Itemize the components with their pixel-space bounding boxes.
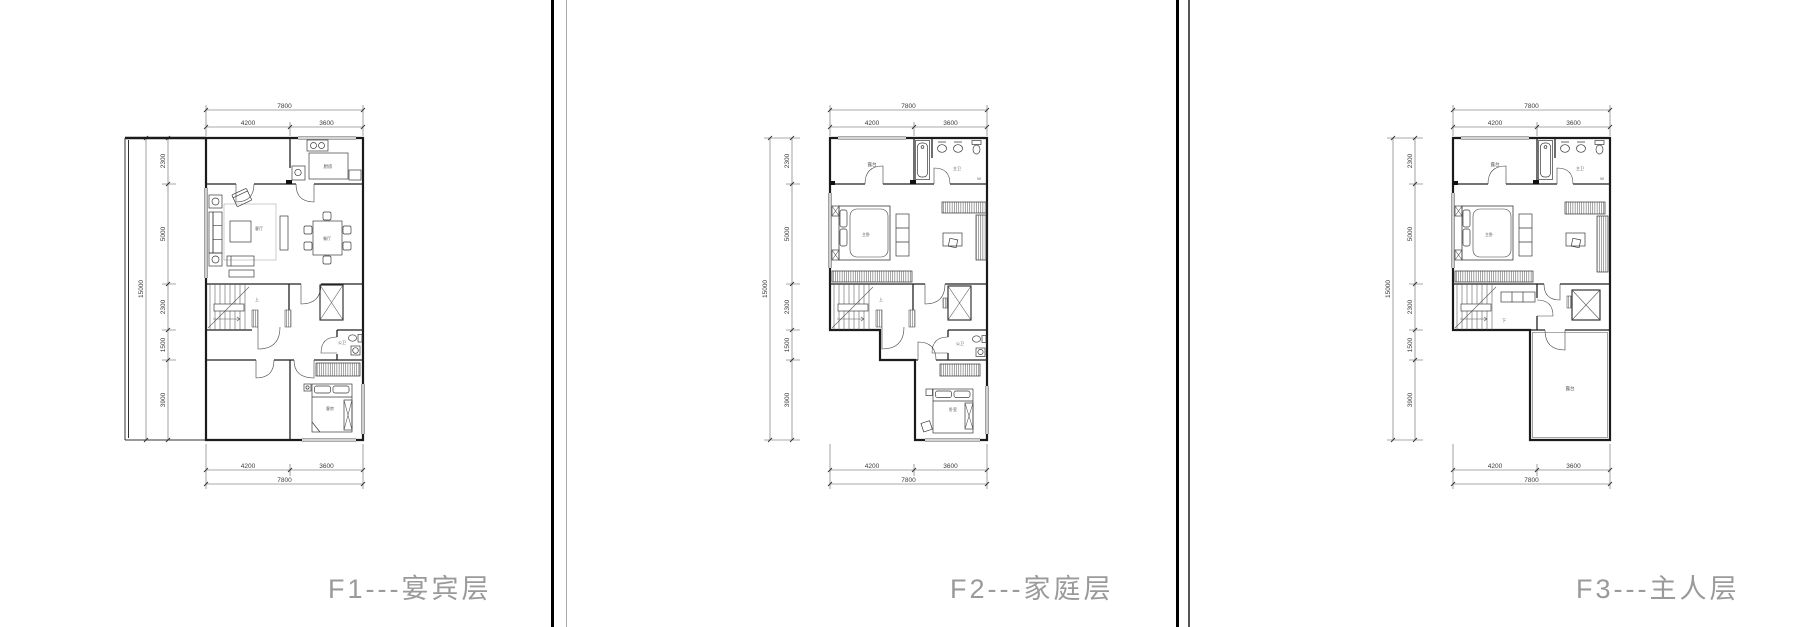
f3-master-bedroom [1455, 202, 1608, 282]
dim-label: 2300 [160, 299, 167, 314]
dim-label: 2300 [1407, 299, 1414, 314]
dim-label: 7800 [1524, 477, 1539, 484]
room-label-master-bath: 主卫 [1576, 165, 1584, 171]
f1-windows [204, 136, 365, 442]
f2-bathroom [973, 336, 987, 357]
dim-label: 3600 [319, 120, 334, 127]
f3-walls [1453, 138, 1610, 440]
f2-master-bedroom [832, 202, 987, 282]
stair-direction-label: 上 [255, 296, 259, 302]
room-label-master-bedroom: 主卧 [1485, 231, 1493, 237]
floor-title-f2: F2---家庭层 [950, 567, 1113, 606]
dim-label: 15000 [1385, 280, 1392, 298]
f2-walls [830, 138, 987, 440]
f2-windows [828, 136, 989, 442]
dim-label: 3900 [1407, 392, 1414, 407]
f1-doors [236, 184, 337, 378]
dim-label: 4200 [865, 463, 880, 470]
dim-label: 5000 [784, 226, 791, 241]
dim-label: 3600 [943, 120, 958, 127]
room-label-bedroom: 客房 [326, 405, 334, 411]
floor-title-f1: F1---宴宾层 [328, 567, 491, 606]
dim-label: 3600 [943, 463, 958, 470]
dim-label: 2300 [784, 299, 791, 314]
f3-stairs [1455, 284, 1535, 330]
dim-label: 5000 [1407, 226, 1414, 241]
f2-bedroom [921, 364, 980, 433]
dim-label: 3900 [784, 392, 791, 407]
dim-label: 4200 [1488, 120, 1503, 127]
panel-divider-1-thick [551, 0, 554, 627]
floor-plan-f2: 7800 4200 3600 4200 3600 7800 2300 5000 … [740, 93, 1000, 493]
room-label-living: 客厅 [255, 225, 263, 231]
f3-master-bath [1539, 141, 1605, 180]
stair-direction-label: 下 [1502, 318, 1506, 323]
f1-living-room [209, 188, 351, 277]
floor-plan-f1: 7800 4200 3600 4200 3600 7800 2300 5000 … [116, 93, 376, 493]
dim-label: 3600 [1566, 463, 1581, 470]
dim-label: 7800 [277, 477, 292, 484]
dim-label: 5000 [160, 226, 167, 241]
room-label-terrace-top: 露台 [1491, 161, 1500, 168]
panel-divider-1-thin [566, 0, 567, 627]
f1-bathroom [349, 335, 363, 356]
room-label-master-bedroom: 主卧 [862, 231, 870, 237]
dim-label: 4200 [865, 120, 880, 127]
f3-windows [1451, 136, 1529, 268]
dim-label: 15000 [762, 280, 769, 298]
dim-label: 4200 [241, 120, 256, 127]
f1-dimensions: 7800 4200 3600 4200 3600 7800 2300 5000 … [138, 103, 365, 489]
dim-label: 3600 [319, 463, 334, 470]
dim-label: 1500 [784, 337, 791, 352]
f2-master-bath [916, 141, 982, 180]
room-label-bath: 公卫 [956, 341, 964, 346]
dim-label: 7800 [1524, 103, 1539, 110]
dim-label: 1500 [160, 337, 167, 352]
room-label-bedroom: 卧室 [949, 406, 957, 412]
f3-elevator [1567, 290, 1600, 320]
panel-divider-2-thin [1188, 0, 1190, 627]
dim-label: 3900 [160, 392, 167, 407]
dim-label: 3600 [1566, 120, 1581, 127]
room-label-terrace: 露台 [868, 161, 877, 168]
room-label-terrace: 露台 [1566, 385, 1575, 392]
f2-stairs [832, 284, 873, 330]
dim-label: 7800 [277, 103, 292, 110]
floor-title-f3: F3---主人层 [1576, 567, 1739, 606]
room-label-kitchen: 厨房 [324, 163, 333, 170]
f1-kitchen [292, 140, 361, 180]
dim-label: 2300 [160, 153, 167, 168]
dim-label: 15000 [138, 280, 145, 298]
f1-walls [206, 138, 363, 440]
room-label-master-bath: 主卫 [953, 165, 961, 171]
f3-doors [1488, 166, 1573, 350]
f2-elevator [943, 286, 971, 320]
floor-plan-f3: 7800 4200 3600 4200 3600 7800 2300 5000 … [1363, 93, 1623, 493]
dim-label: 7800 [901, 103, 916, 110]
panel-divider-2-thick [1176, 0, 1179, 627]
drain-symbol: W [977, 176, 981, 181]
f1-stairs [208, 284, 249, 330]
f3-terrace [1533, 333, 1608, 438]
dim-label: 4200 [241, 463, 256, 470]
room-label-dining: 餐厅 [323, 235, 331, 241]
stair-direction-label: 上 [879, 296, 883, 302]
f1-bedroom [304, 363, 360, 432]
dim-label: 7800 [901, 477, 916, 484]
dim-label: 1500 [1407, 337, 1414, 352]
f1-elevator [320, 285, 343, 320]
dim-label: 4200 [1488, 463, 1503, 470]
drain-symbol: W [1600, 176, 1604, 181]
room-label-bath: 公卫 [338, 340, 346, 345]
dim-label: 2300 [784, 153, 791, 168]
dim-label: 2300 [1407, 153, 1414, 168]
